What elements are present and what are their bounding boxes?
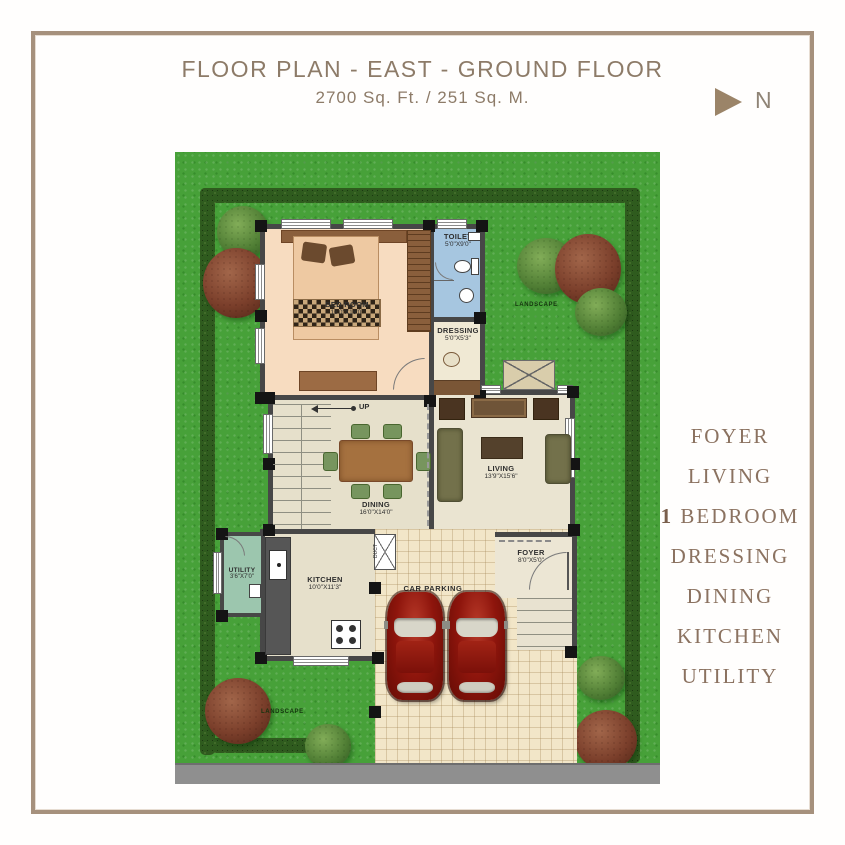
window bbox=[263, 414, 273, 454]
kitchen-sink bbox=[269, 550, 287, 580]
pillow bbox=[301, 241, 327, 263]
dining-label: DINING 16'0"X14'0" bbox=[359, 500, 392, 516]
hedge-top bbox=[200, 188, 640, 203]
floor-plan-page: FLOOR PLAN - EAST - GROUND FLOOR 2700 Sq… bbox=[0, 0, 845, 845]
sofa-right bbox=[545, 434, 571, 484]
car-windshield bbox=[394, 618, 436, 637]
arrow-dot bbox=[351, 406, 356, 411]
dining-chair bbox=[383, 424, 402, 439]
hedge-bottom-left bbox=[200, 738, 312, 753]
utility-sink bbox=[249, 584, 261, 598]
pillar bbox=[216, 610, 228, 622]
stove bbox=[331, 620, 361, 649]
toilet-partition bbox=[434, 280, 454, 281]
pillar bbox=[369, 706, 381, 718]
north-label: N bbox=[755, 87, 772, 114]
tv-cabinet bbox=[439, 398, 465, 420]
toilet-wc-tank bbox=[471, 258, 479, 275]
utility-label: UTILITY 3'6"X7'0" bbox=[229, 567, 256, 580]
kitchen-label: KITCHEN 10'0"X11'3" bbox=[307, 575, 342, 591]
hedge-right bbox=[625, 188, 640, 763]
pillar bbox=[567, 386, 579, 398]
dining-chair bbox=[351, 484, 370, 499]
tree-red bbox=[575, 710, 637, 770]
pillar bbox=[476, 220, 488, 232]
bed bbox=[293, 236, 379, 340]
window bbox=[437, 219, 467, 229]
toilet-sink bbox=[459, 288, 474, 303]
landscape-label: LANDSCAPE bbox=[515, 302, 558, 308]
legend-item-foyer: FOYER bbox=[646, 424, 814, 449]
tree-green bbox=[577, 656, 625, 700]
dressing-label: DRESSING 5'0"X5'3" bbox=[437, 326, 479, 342]
toilet-basin bbox=[468, 232, 481, 241]
pillar bbox=[474, 312, 486, 324]
window bbox=[343, 219, 393, 229]
toilet-wc bbox=[454, 260, 471, 273]
room-legend: FOYER LIVING 1 BEDROOM DRESSING DINING K… bbox=[646, 424, 814, 704]
pillar bbox=[372, 652, 384, 664]
wardrobe bbox=[407, 230, 431, 332]
stairs-up-arrow bbox=[317, 408, 353, 409]
living-label: LIVING 13'9"X15'6" bbox=[484, 464, 517, 480]
window bbox=[255, 328, 265, 364]
duct-shaft: DUCT bbox=[374, 534, 396, 570]
dressing-stool bbox=[443, 352, 460, 367]
bedroom-label: BED ROOM 16'0"X16'0" bbox=[325, 300, 369, 316]
burner bbox=[336, 625, 343, 632]
stair-rail bbox=[301, 404, 302, 529]
window bbox=[281, 219, 331, 229]
pillar bbox=[568, 524, 580, 536]
compass: N bbox=[715, 85, 805, 121]
up-label: UP bbox=[359, 402, 369, 411]
car-windshield bbox=[456, 618, 498, 637]
foyer-door-leaf bbox=[567, 552, 569, 590]
pillar bbox=[369, 582, 381, 594]
car-mirror bbox=[446, 621, 450, 629]
dining-chair bbox=[323, 452, 338, 471]
burner bbox=[349, 625, 356, 632]
page-title: FLOOR PLAN - EAST - GROUND FLOOR bbox=[0, 56, 845, 83]
dining-living-divider bbox=[427, 404, 429, 526]
car bbox=[449, 592, 505, 700]
legend-item-dressing: DRESSING bbox=[646, 544, 814, 569]
legend-item-living: LIVING bbox=[646, 464, 814, 489]
dining-table bbox=[339, 440, 413, 482]
legend-item-utility: UTILITY bbox=[646, 664, 814, 689]
window bbox=[255, 264, 265, 300]
tv-cabinet bbox=[533, 398, 559, 420]
landscape-label: LANDSCAPE bbox=[261, 709, 304, 715]
dresser bbox=[299, 371, 377, 391]
legend-item-dining: DINING bbox=[646, 584, 814, 609]
pillar bbox=[255, 220, 267, 232]
coffee-table bbox=[481, 437, 523, 459]
north-arrow-icon bbox=[715, 88, 742, 116]
foyer-beam-dashed-line bbox=[499, 540, 551, 542]
pillar bbox=[424, 395, 436, 407]
tree-green bbox=[305, 724, 351, 768]
car bbox=[387, 592, 443, 700]
entry-steps bbox=[517, 598, 577, 650]
pillar bbox=[565, 646, 577, 658]
pillar bbox=[263, 392, 275, 404]
legend-item-kitchen: KITCHEN bbox=[646, 624, 814, 649]
dining-chair bbox=[383, 484, 402, 499]
car-rear-window bbox=[459, 682, 495, 693]
tree-green bbox=[575, 288, 627, 336]
bay-planter bbox=[503, 360, 555, 390]
pillar bbox=[255, 310, 267, 322]
window bbox=[213, 552, 222, 594]
car-roof bbox=[396, 641, 434, 673]
car-mirror bbox=[384, 621, 388, 629]
dressing-counter bbox=[434, 380, 480, 395]
burner bbox=[349, 637, 356, 644]
sink-drain bbox=[277, 563, 281, 567]
sofa-left bbox=[437, 428, 463, 502]
arrow-head-icon bbox=[311, 405, 318, 413]
legend-item-bedroom: 1 BEDROOM bbox=[646, 504, 814, 529]
car-rear-window bbox=[397, 682, 433, 693]
duct-label: DUCT bbox=[373, 544, 379, 558]
burner bbox=[336, 637, 343, 644]
driveway-road bbox=[175, 763, 660, 784]
site-plan: LANDSCAPE LANDSCAPE bbox=[175, 152, 660, 784]
pillow bbox=[329, 244, 356, 267]
tv-console bbox=[471, 398, 527, 418]
car-mirror bbox=[504, 621, 508, 629]
car-roof bbox=[458, 641, 496, 673]
window bbox=[293, 656, 349, 666]
dining-chair bbox=[351, 424, 370, 439]
